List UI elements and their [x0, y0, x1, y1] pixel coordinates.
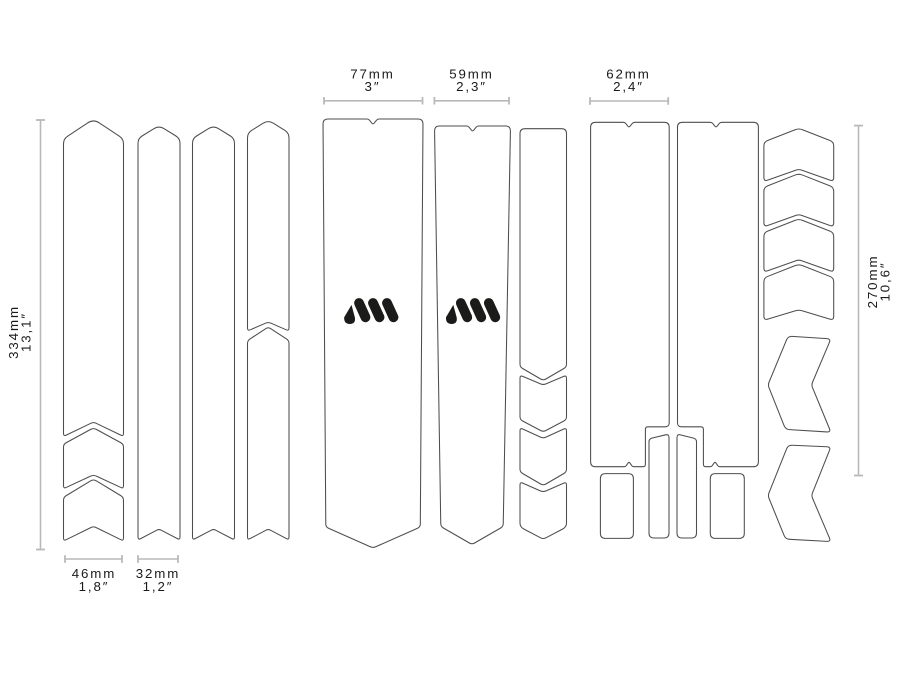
svg-text:2,3″: 2,3″	[456, 79, 487, 94]
svg-text:2,4″: 2,4″	[613, 79, 644, 94]
svg-text:1,8″: 1,8″	[79, 579, 110, 594]
svg-text:1,2″: 1,2″	[143, 579, 174, 594]
svg-text:10,6″: 10,6″	[878, 261, 893, 301]
svg-text:13,1″: 13,1″	[19, 312, 34, 352]
svg-text:3″: 3″	[365, 79, 381, 94]
